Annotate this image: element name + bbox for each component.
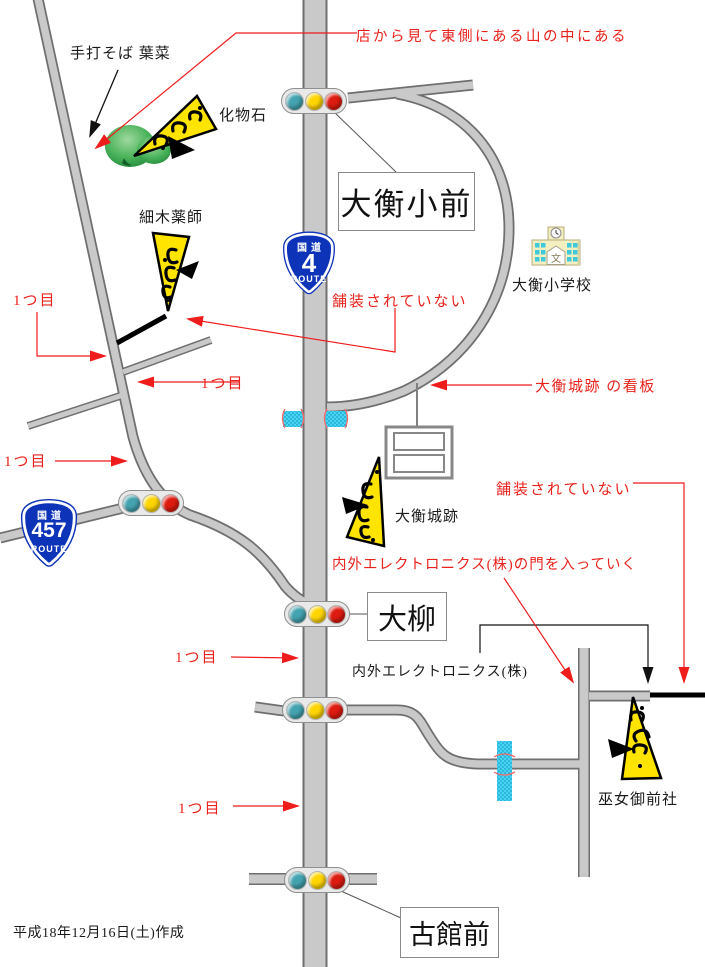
red-light-icon [327, 605, 346, 624]
label-hosoki-yakushi: 細木薬師 [139, 206, 203, 227]
unpaved-right-arrow [633, 483, 684, 682]
yellow-light-icon [306, 701, 325, 720]
traffic-light-furudate-mae [284, 867, 350, 893]
unpaved-road-upper [117, 316, 166, 343]
note-castle-sign: 大衡城跡 の看板 [535, 375, 656, 396]
teal-light-icon [285, 92, 304, 111]
traffic-light-middle [282, 697, 348, 723]
route-shield-route-label: ROUTE [17, 544, 81, 554]
red-light-icon [324, 92, 343, 111]
route-shield-number: 457 [17, 519, 81, 543]
note-first-5: 1つ目 [178, 797, 222, 818]
red-light-icon [327, 871, 346, 890]
label-soba-shop: 手打そば 葉菜 [70, 42, 171, 63]
note-unpaved-upper: 舗装されていない [332, 290, 468, 311]
label-bakemono-ishi: 化物石 [219, 104, 267, 125]
school-icon: 文 [532, 227, 580, 265]
trail-marker-miko [608, 697, 661, 779]
intersection-box-ohira-sho-mae: 大衡小前 [338, 172, 475, 231]
route-4-shield-icon: 国道 4 ROUTE [281, 230, 337, 296]
yellow-light-icon [308, 605, 327, 624]
traffic-light-route457 [118, 490, 184, 516]
yellow-light-icon [308, 871, 327, 890]
note-first-2: 1つ目 [201, 372, 245, 393]
yellow-light-icon [142, 494, 161, 513]
yellow-light-icon [305, 92, 324, 111]
trail-marker-hosoki [153, 233, 199, 311]
red-light-icon [325, 701, 344, 720]
soba-arrow [90, 70, 118, 136]
label-elementary-school: 大衡小学校 [512, 274, 592, 295]
bridge-marker-lower [494, 741, 515, 801]
label-miko-gozen-shrine: 巫女御前社 [598, 788, 678, 809]
teal-light-icon [288, 605, 307, 624]
note-gate: 内外エレクトロニクス(株)の門を入っていく [332, 553, 637, 574]
red-light-icon [161, 494, 180, 513]
school-mark-glyph: 文 [551, 252, 561, 265]
trail-marker-castle [342, 457, 384, 546]
traffic-light-oyanagi [284, 601, 350, 627]
teal-light-icon [288, 871, 307, 890]
first-mark-arrow-1 [37, 312, 105, 356]
note-mountain: 店から見て東側にある山の中にある [356, 25, 628, 46]
label-created-date: 平成18年12月16日(土)作成 [13, 922, 184, 942]
teal-light-icon [122, 494, 141, 513]
route-map-canvas: 文 [0, 0, 705, 967]
note-first-3: 1つ目 [4, 450, 48, 471]
label-castle-ruins: 大衡城跡 [395, 505, 459, 526]
teal-light-icon [286, 701, 305, 720]
intersection-box-oyanagi: 大柳 [367, 592, 447, 641]
trail-marker-bakemono [134, 96, 216, 159]
note-first-1: 1つ目 [13, 289, 57, 310]
intersection-box-furudate-mae: 古館前 [400, 907, 499, 958]
note-unpaved-right: 舗装されていない [496, 478, 632, 499]
route-457-shield-icon: 国道 457 ROUTE [17, 498, 81, 568]
note-first-4: 1つ目 [175, 646, 219, 667]
traffic-light-ohira-sho-mae [281, 88, 347, 114]
label-naigai-electronics: 内外エレクトロニクス(株) [352, 661, 528, 681]
first-mark-arrow-4 [231, 657, 297, 658]
route-shield-route-label: ROUTE [281, 274, 337, 284]
unpaved-upper-arrow [188, 308, 395, 352]
